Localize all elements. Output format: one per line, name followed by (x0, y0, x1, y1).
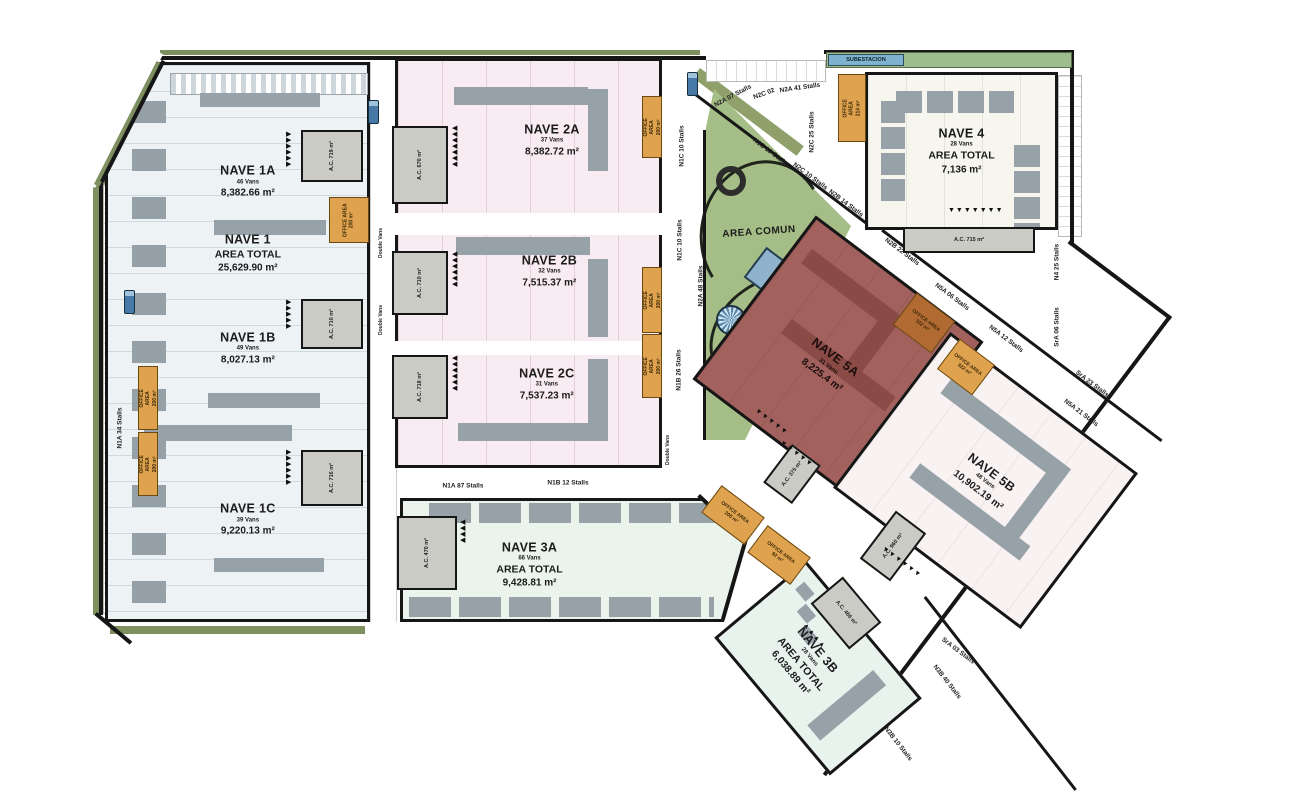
dock-block (795, 582, 814, 602)
office-area-label: OFFICE AREA 200 m² (643, 357, 662, 375)
dock-block (200, 93, 320, 107)
dock-block (454, 87, 588, 105)
nave2b-label: NAVE 2B 32 Vans 7,515.37 m² (522, 253, 577, 290)
ac-box: A.C. 670 m² (392, 126, 448, 204)
dock-column (881, 101, 905, 203)
boundary (1068, 240, 1173, 320)
office-area-box: OFFICE AREA 200 m² (642, 334, 662, 398)
ac-box: A.C. 715 m² (903, 227, 1035, 253)
nave1b-label: NAVE 1B 49 Vans 8,027.13 m² (220, 329, 275, 366)
ac-box-label: A.C. 375 m² (781, 460, 804, 488)
nave1-total-label: NAVE 1 AREA TOTAL 25,629.90 m² (215, 232, 281, 275)
parking-strip (706, 60, 826, 82)
dock-block (458, 423, 608, 441)
stall-count-label: N2A 48 Stalls (698, 266, 705, 307)
office-area-label: OFFICE AREA 92 m² (762, 540, 796, 570)
subestacion: SUBESTACION (828, 54, 904, 66)
ac-box: A.C. 710 m² (301, 299, 363, 349)
office-area-label: OFFICE AREA 200 m² (139, 455, 158, 473)
ac-box: A.C. 470 m² (397, 516, 457, 590)
boundary (99, 181, 103, 615)
dock-arrows-icon: ▶ ▶ ▶ ▶ ▶ (286, 300, 292, 330)
nave2c-label: NAVE 2C 31 Vans 7,537.23 m² (519, 366, 574, 403)
truck-icon (687, 72, 698, 96)
office-area-label: OFFICE AREA 322 m² (949, 352, 983, 382)
divider-road (395, 213, 668, 235)
stall-count-label: N1A 87 Stalls (443, 483, 484, 490)
ac-box-label: A.C. 710 m² (329, 309, 335, 339)
dock-arrows-icon: ◀ ◀ ◀ ◀ ◀ ◀ (452, 252, 458, 288)
office-area-box: OFFICE AREA 200 m² (138, 432, 158, 496)
nave1a-label: NAVE 1A 46 Vans 8,382.66 m² (220, 163, 275, 200)
unit-column (132, 101, 166, 613)
small-note-label: Double Vans (378, 228, 384, 258)
dock-row (896, 91, 1014, 113)
dock-block (214, 558, 324, 572)
stall-count-label: N2A 41 Stalls (779, 82, 821, 95)
office-area-box: OFFICE AREA 200 m² (138, 366, 158, 430)
office-area-box: OFFICE AREA 214 m² (838, 74, 866, 142)
dock-arrows-icon: ▶ ▶ ▶ ▶ ▶ ▶ (286, 132, 292, 168)
truck-icon (124, 290, 135, 314)
dock-block (144, 425, 292, 441)
dock-row (429, 503, 729, 523)
ac-box-label: A.C. 718 m² (417, 372, 423, 402)
dock-block (588, 359, 608, 423)
ac-box-label: A.C. 710 m² (417, 268, 423, 298)
nave4-label: NAVE 4 28 Vans AREA TOTAL 7,136 m² (928, 126, 994, 177)
office-area-label: OFFICE AREA 200 m² (643, 118, 662, 136)
ac-box-label: A.C. 715 m² (954, 237, 984, 243)
divider-road (395, 341, 668, 355)
planting-strip (110, 626, 365, 634)
ac-box: A.C. 718 m² (392, 355, 448, 419)
ac-box-label: A.C. 466 m² (834, 600, 858, 627)
dock-column (1014, 145, 1040, 227)
small-note-label: Double Vans (378, 305, 384, 335)
ac-box-label: A.C. 470 m² (424, 538, 430, 568)
road-edge (924, 596, 1077, 791)
parking-row (170, 73, 368, 95)
small-note-label: Double Vans (665, 435, 671, 465)
ac-box: A.C. 710 m² (392, 251, 448, 315)
dock-arrows-icon: ◀ ◀ ◀ ◀ ◀ ◀ ◀ (452, 126, 458, 168)
building-nave3b: NAVE 3B 28 Vans AREA TOTAL 6,038.89 m² (714, 560, 922, 775)
ac-box: A.C. 719 m² (301, 130, 363, 182)
stall-count-label: N2C 25 Stalls (809, 111, 816, 152)
roundabout (716, 166, 746, 196)
nave1c-label: NAVE 1C 39 Vans 9,220.13 m² (220, 501, 275, 538)
stall-count-label: N1A 34 Stalls (117, 408, 124, 449)
boundary (1070, 52, 1074, 244)
road (903, 600, 1078, 800)
dock-block (588, 89, 608, 171)
dock-arrows-icon: ◀ ◀ ◀ ◀ (460, 520, 466, 544)
stall-count-label: N1B 12 Stalls (547, 480, 588, 487)
dock-arrows-icon: ▶ ▶ ▶ ▶ ▶ ▶ (286, 450, 292, 486)
dock-row (409, 597, 714, 617)
stall-count-label: N2C 02 (752, 87, 775, 101)
ac-box-label: A.C. 670 m² (417, 150, 423, 180)
office-area-label: OFFICE AREA 200 m² (643, 291, 662, 309)
office-area-box: OFFICE AREA 200 m² (329, 197, 369, 243)
planting-strip (160, 50, 700, 55)
ac-box-label: A.C. 719 m² (329, 141, 335, 171)
ac-box-label: A.C. 716 m² (329, 463, 335, 493)
subestacion-label: SUBESTACION (846, 57, 886, 63)
office-area-label: OFFICE AREA 214 m² (843, 95, 862, 121)
nave3a-label: NAVE 3A 66 Vans AREA TOTAL 9,428.81 m² (496, 539, 562, 590)
dock-arrows-icon: ▼▼▼▼▼▼▼ (948, 208, 1004, 214)
stall-count-label: N1B 26 Stalls (676, 349, 683, 390)
office-area-label: OFFICE AREA 200 m² (716, 500, 750, 530)
office-area-label: OFFICE AREA 200 m² (139, 389, 158, 407)
stall-count-label: SrA 06 Stalls (1054, 307, 1061, 347)
nave3b-label: NAVE 3B 28 Vans AREA TOTAL 6,038.89 m² (764, 619, 845, 702)
nave2a-label: NAVE 2A 37 Vans 8,382.72 m² (524, 121, 579, 158)
stall-count-label: N3B 10 Stalls (883, 726, 914, 763)
office-area-box: OFFICE AREA 200 m² (642, 267, 662, 333)
dock-block (588, 259, 608, 337)
dock-arrows-icon: ◀ ◀ ◀ ◀ ◀ ◀ (452, 356, 458, 392)
office-area-label: OFFICE AREA 200 m² (343, 203, 356, 237)
dock-block (208, 393, 320, 408)
office-area-label: OFFICE AREA 322 m² (907, 308, 941, 338)
stall-count-label: N1C 10 Stalls (677, 219, 684, 260)
ac-box: A.C. 716 m² (301, 450, 363, 506)
stall-count-label: N1C 10 Stalls (679, 125, 686, 166)
stall-count-label: N4 25 Stalls (1054, 244, 1061, 281)
office-area-box: OFFICE AREA 200 m² (642, 96, 662, 158)
site-plan: AREA COMUN NAVE 1A 46 Vans 8,382.66 m² N… (0, 0, 1300, 800)
truck-icon (368, 100, 379, 124)
